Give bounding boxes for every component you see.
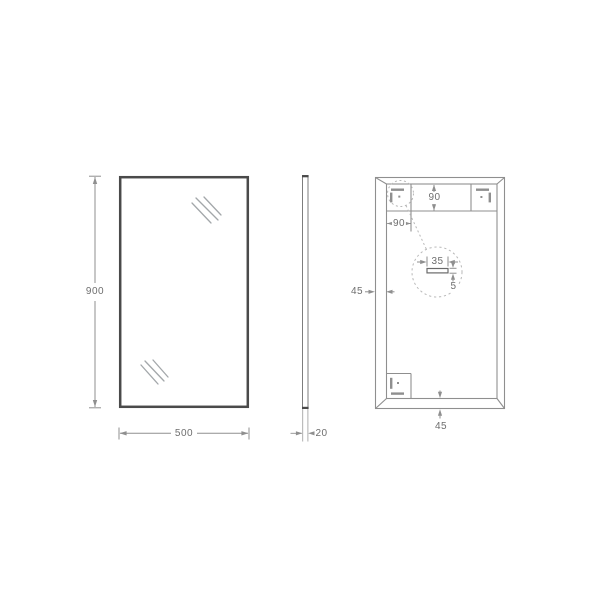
frame-side-width-dimension [365,290,395,294]
bracket-top-right-icon [476,189,491,203]
slot-detail-outline [427,269,448,273]
spec-sheet-page: 900 500 20 90 90 45 45 35 5 [0,0,600,600]
front-view [89,176,249,439]
back-view [365,178,505,419]
front-height-label: 900 [85,287,105,297]
callout-leader-line [406,206,427,250]
frame-bottom-width-dimension [438,391,442,419]
side-thickness-label: 20 [314,429,328,439]
drawing-linework [0,0,600,600]
bracket-side-offset-label: 90 [392,219,406,229]
frame-side-width-label: 45 [350,287,364,297]
front-width-label: 500 [174,429,194,439]
slot-height-dimension [450,262,457,282]
side-profile-outline [303,176,309,409]
detail-callout [388,181,463,298]
bracket-top-offset-label: 90 [427,193,441,203]
slot-width-label: 35 [430,257,444,267]
frame-bottom-width-label: 45 [434,422,448,432]
back-frame-outline [376,178,505,409]
mirror-outline [120,177,248,407]
bracket-top-left-icon [390,189,404,203]
side-view [291,176,315,442]
side-thickness-dimension [291,409,315,442]
bracket-bottom-left-icon [390,378,404,395]
slot-height-label: 5 [449,282,457,292]
